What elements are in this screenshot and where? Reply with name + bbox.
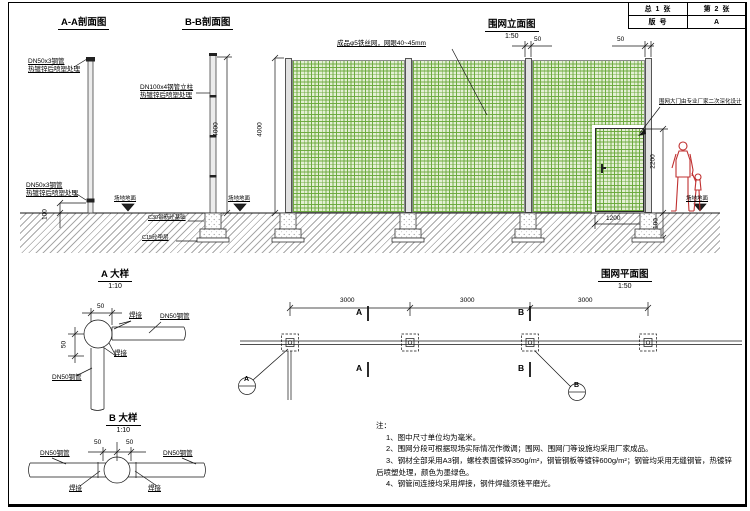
bb-title-text: B-B剖面图 xyxy=(182,14,233,30)
plan-title: 围网平面图 1:50 xyxy=(598,266,652,290)
plan-section-mark-b-top: B xyxy=(518,307,524,317)
sheet-number-cell: 第 2 张 xyxy=(688,3,747,16)
detail-b-dim-50-right: 50 xyxy=(126,439,133,446)
bb-foundation-label: C30钢筋砼基础 xyxy=(148,215,186,222)
detail-a-pipe-label-top: DN50钢管 xyxy=(160,313,190,321)
sheet-total-cell: 总 1 张 xyxy=(629,3,688,16)
aa-treatment-label-bottom: 热镀锌后喷塑处理 xyxy=(26,190,78,198)
elev-dim-1200: 1200 xyxy=(606,215,620,222)
bb-ground-label-left: 场地地面 xyxy=(114,196,136,203)
elev-dim-50-left: 50 xyxy=(534,36,541,43)
detail-b-weld-label-right: 焊接 xyxy=(148,485,161,493)
elev-dim-2200: 2200 xyxy=(650,150,657,174)
mesh-spec-label: 成品φ5铁丝网，网眼40~45mm xyxy=(337,40,426,48)
note-1: 1、图中尺寸单位均为毫米。 xyxy=(376,432,732,444)
elev-ground-label: 场地地面 xyxy=(686,196,708,203)
detail-a-scale: 1:10 xyxy=(98,282,132,290)
gate-note-label: 围网大门由专业厂家二次深化设计 xyxy=(659,99,742,106)
detail-a-title-text: A 大样 xyxy=(98,266,132,282)
plan-drawing xyxy=(239,302,743,401)
aa-pipe-label: DN50x3钢管 xyxy=(28,58,64,66)
detail-b-title-text: B 大样 xyxy=(106,410,141,426)
elevation-scale: 1:50 xyxy=(485,32,539,40)
revision-label-cell: 版 号 xyxy=(629,16,688,29)
detail-b-pipe-label-right: DN50钢管 xyxy=(163,450,193,458)
plan-callout-a: A xyxy=(244,376,249,383)
bb-cushion-label: C15砼垫层 xyxy=(142,235,169,242)
detail-b-drawing xyxy=(29,442,206,486)
plan-section-mark-a-top: A xyxy=(356,307,362,317)
bb-section-title: B-B剖面图 xyxy=(182,14,233,30)
bb-ground-label-right: 场地地面 xyxy=(228,196,250,203)
elev-dim-100: 100 xyxy=(653,212,660,236)
bb-post-label: DN100x4钢管立柱 xyxy=(140,84,193,92)
detail-b-weld-label-left: 焊接 xyxy=(69,485,82,493)
detail-b-scale: 1:10 xyxy=(106,426,141,434)
general-notes: 注： 1、图中尺寸单位均为毫米。 2、围网分段可根据现场实际情况作微调；围网、围… xyxy=(376,420,732,490)
detail-a-dim-50-left: 50 xyxy=(61,333,68,357)
title-block: 总 1 张 第 2 张 版 号 A xyxy=(628,2,747,29)
elev-dim-4000: 4000 xyxy=(257,118,264,142)
detail-a-pipe-label-bottom: DN50钢管 xyxy=(52,374,82,382)
bb-dim-4000: 4000 xyxy=(213,118,220,142)
detail-b-pipe-label-left: DN50钢管 xyxy=(40,450,70,458)
detail-a-weld-label-top: 焊接 xyxy=(129,312,142,320)
elevation-title: 围网立面图 1:50 xyxy=(485,16,539,40)
drawing-sheet: 总 1 张 第 2 张 版 号 A A-A剖面图 B-B剖面图 围网立面图 1:… xyxy=(0,0,750,511)
door-handle-bar xyxy=(601,167,606,169)
bb-treatment-label: 热镀锌后喷塑处理 xyxy=(140,92,192,100)
plan-dim-3000-1: 3000 xyxy=(340,297,354,304)
door-handle xyxy=(601,164,603,173)
plan-title-text: 围网平面图 xyxy=(598,266,652,282)
aa-section-title: A-A剖面图 xyxy=(58,14,109,30)
aa-dim-100: 100 xyxy=(42,203,49,227)
aa-title-text: A-A剖面图 xyxy=(58,14,109,30)
note-4: 4、钢管间连接均采用焊接，钢件焊缝须锉平磨光。 xyxy=(376,478,732,490)
elevation-dimensions xyxy=(272,41,706,242)
detail-b-dim-50-left: 50 xyxy=(94,439,101,446)
detail-a-weld-label-bottom: 焊接 xyxy=(114,350,127,358)
plan-scale: 1:50 xyxy=(598,282,652,290)
note-2: 2、围网分段可根据现场实际情况作微调；围网、围网门等设施均采用厂家成品。 xyxy=(376,443,732,455)
plan-dim-3000-3: 3000 xyxy=(578,297,592,304)
detail-a-dim-50-top: 50 xyxy=(97,303,104,310)
plan-callout-b: B xyxy=(574,382,579,389)
plan-section-mark-a-bottom: A xyxy=(356,363,362,373)
plan-dim-3000-2: 3000 xyxy=(460,297,474,304)
note-3: 3、钢材全部采用A3钢，螺栓表面镀锌350g/m²，钢管钢板等镀锌600g/m²… xyxy=(376,455,732,478)
revision-value-cell: A xyxy=(688,16,747,29)
aa-pipe-label-bottom: DN50x3钢管 xyxy=(26,182,62,190)
elev-dim-50-right: 50 xyxy=(617,36,624,43)
aa-section-drawing xyxy=(57,57,95,228)
bb-section-drawing xyxy=(122,53,246,242)
detail-b-title: B 大样 1:10 xyxy=(106,410,141,434)
detail-a-title: A 大样 1:10 xyxy=(98,266,132,290)
notes-heading: 注： xyxy=(376,420,732,432)
elevation-title-text: 围网立面图 xyxy=(485,16,539,32)
detail-a-drawing xyxy=(68,308,186,411)
aa-treatment-label: 热镀锌后喷塑处理 xyxy=(28,66,80,74)
plan-section-mark-b-bottom: B xyxy=(518,363,524,373)
